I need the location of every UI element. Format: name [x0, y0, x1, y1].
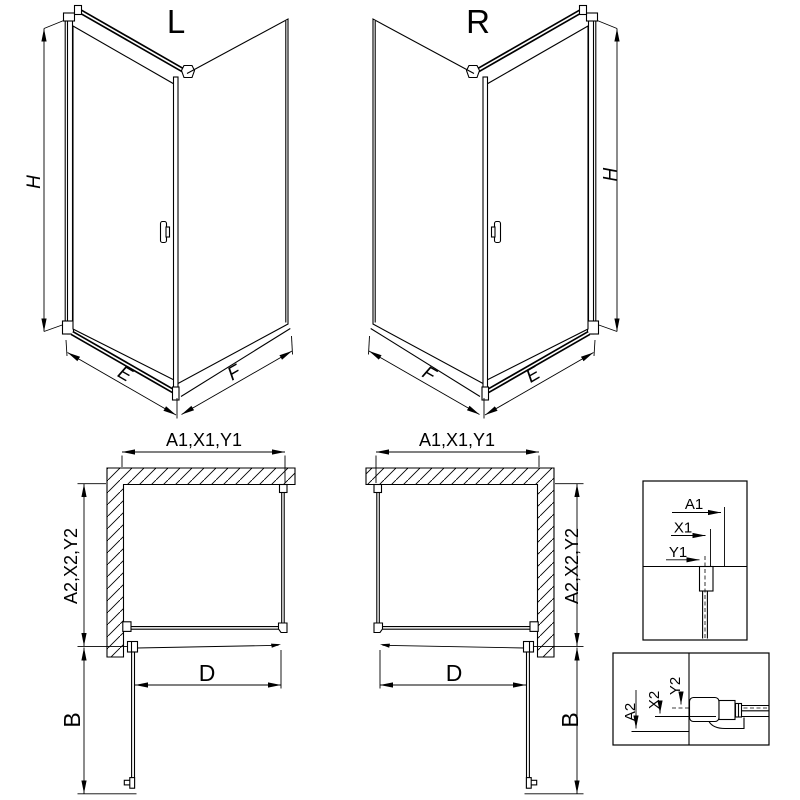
- right-plan-swing-label: B: [557, 712, 583, 727]
- right-plan-door-label: D: [446, 660, 463, 686]
- left-view-title: L: [167, 3, 185, 40]
- wall-profile-detail: [700, 567, 714, 592]
- detail-x2-label: X2: [646, 691, 663, 709]
- detail-a1-label: A1: [685, 496, 703, 513]
- right-view-title: R: [466, 3, 490, 40]
- left-height-label: H: [24, 175, 45, 189]
- detail-a2-label: A2: [622, 703, 639, 721]
- left-plan-door-label: D: [199, 660, 216, 686]
- right-plan-width-label: A1,X1,Y1: [419, 430, 495, 450]
- right-e-label: E: [523, 363, 545, 388]
- detail-x1-label: X1: [674, 520, 692, 537]
- technical-drawing: L R H H E F F E A1,X1,Y1 A1,X1,Y1 A2,X2,…: [0, 0, 800, 800]
- right-f-label: F: [418, 362, 440, 387]
- detail-y1-label: Y1: [669, 544, 687, 561]
- right-front-view: [369, 6, 618, 419]
- left-plan-width-label: A1,X1,Y1: [166, 430, 242, 450]
- left-plan-depth-label: A2,X2,Y2: [61, 528, 81, 604]
- detail-y2-label: Y2: [667, 677, 684, 695]
- left-f-label: F: [224, 361, 246, 386]
- left-e-label: E: [114, 362, 136, 387]
- right-height-label: H: [598, 167, 619, 181]
- right-plan-depth-label: A2,X2,Y2: [562, 528, 582, 604]
- depth-detail-box: [613, 653, 769, 745]
- left-plan-swing-label: B: [59, 712, 85, 727]
- left-front-view: [44, 6, 293, 419]
- shower-enclosure-spec-sheet: L R H H E F F E A1,X1,Y1 A1,X1,Y1 A2,X2,…: [0, 0, 800, 800]
- hinge-detail: [690, 698, 770, 729]
